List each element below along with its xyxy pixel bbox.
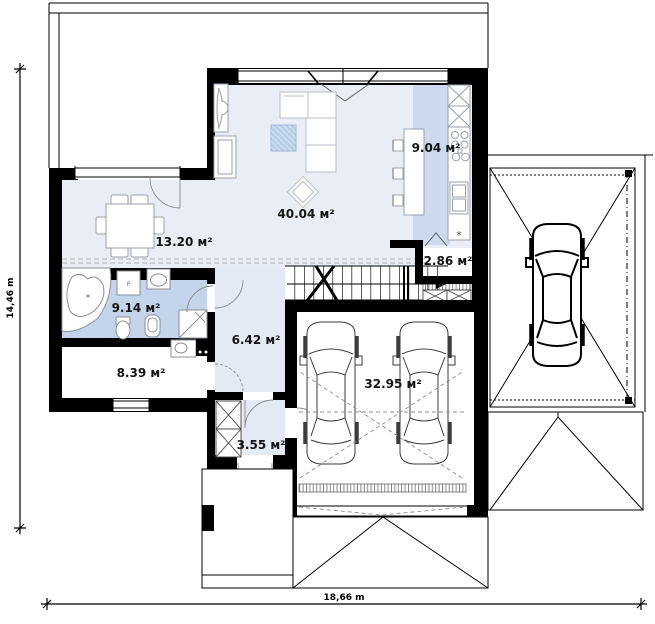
living-room-floor-lower xyxy=(215,248,423,268)
room-label-utility: 8.39 м² xyxy=(117,366,166,380)
utility-fixtures xyxy=(171,339,211,357)
chair xyxy=(96,217,106,234)
dimension-bottom: 18,66 m xyxy=(41,593,647,610)
roof-east-wing xyxy=(488,412,643,510)
wall-west xyxy=(49,180,62,412)
room-label-dining: 13.20 м² xyxy=(155,235,212,249)
wall-pantry-south xyxy=(415,276,472,284)
fireplace-inner xyxy=(218,140,232,174)
hall-floor xyxy=(215,268,285,392)
wall-east xyxy=(472,85,488,312)
room-label-vestibule: 3.55 м² xyxy=(237,438,286,452)
dining-furniture xyxy=(96,195,164,257)
window-terrace xyxy=(75,166,180,179)
floor-plan-drawing: * P xyxy=(0,0,655,624)
bar-stools xyxy=(393,140,403,206)
car-garage-right xyxy=(393,322,455,464)
dimension-width-label: 18,66 m xyxy=(324,593,365,603)
side-entrance-steps xyxy=(423,282,471,302)
boiler-dot xyxy=(199,351,202,354)
dining-table xyxy=(106,204,154,248)
floor-plan: * P xyxy=(0,0,655,624)
porch-wall-stub xyxy=(202,505,214,531)
wall-garage-north xyxy=(285,300,488,312)
dimension-height-label: 14,46 m xyxy=(6,278,16,319)
garage-door-gap xyxy=(285,408,297,438)
kitchen-asterisk: * xyxy=(456,229,462,242)
car-carport xyxy=(526,224,588,366)
room-label-hall: 6.42 м² xyxy=(232,333,281,347)
boiler-dot xyxy=(205,351,208,354)
eaves-top-lines xyxy=(49,3,488,13)
room-label-living: 40.04 м² xyxy=(277,207,334,221)
bath-door-gap xyxy=(207,284,215,312)
wall-pantry-west xyxy=(415,248,423,278)
garage-gate-gap xyxy=(297,505,467,517)
utility-sink-basin xyxy=(175,343,187,353)
carport-post xyxy=(625,397,632,404)
carport-post xyxy=(625,170,632,177)
room-label-kitchen: 9.04 м² xyxy=(412,141,461,155)
wall-terrace-junction-left xyxy=(49,168,78,180)
window-utility xyxy=(113,399,149,411)
bathtub-drain xyxy=(87,295,90,298)
wall-garage-east xyxy=(474,312,488,505)
washing-machine-label: P xyxy=(127,281,131,288)
wall-terrace-junction-right xyxy=(180,168,215,180)
garage-threshold xyxy=(299,484,466,492)
room-label-pantry: 2.86 м² xyxy=(424,254,473,268)
wall-kitchen-south xyxy=(390,240,423,248)
chair xyxy=(154,217,164,234)
car-garage-left xyxy=(300,322,362,464)
tall-cabinets xyxy=(448,85,470,127)
vestibule-door-gap xyxy=(243,392,273,400)
dimension-left: 14,46 m xyxy=(6,63,26,534)
room-label-bathroom: 9.14 м² xyxy=(112,301,161,315)
bidet-basin xyxy=(148,318,157,332)
room-label-garage: 32.95 м² xyxy=(364,377,421,391)
coffee-table-hatch xyxy=(271,125,296,151)
roof-south-canopy xyxy=(293,517,488,588)
carport xyxy=(488,155,653,412)
boiler xyxy=(196,339,211,356)
shower xyxy=(179,310,207,338)
terrace-outline xyxy=(49,3,59,168)
porch xyxy=(202,469,293,588)
toilet-bowl xyxy=(116,321,130,339)
sink-basin xyxy=(151,274,167,286)
utility-door-gap xyxy=(207,362,215,390)
oven-cabinet xyxy=(450,182,468,214)
